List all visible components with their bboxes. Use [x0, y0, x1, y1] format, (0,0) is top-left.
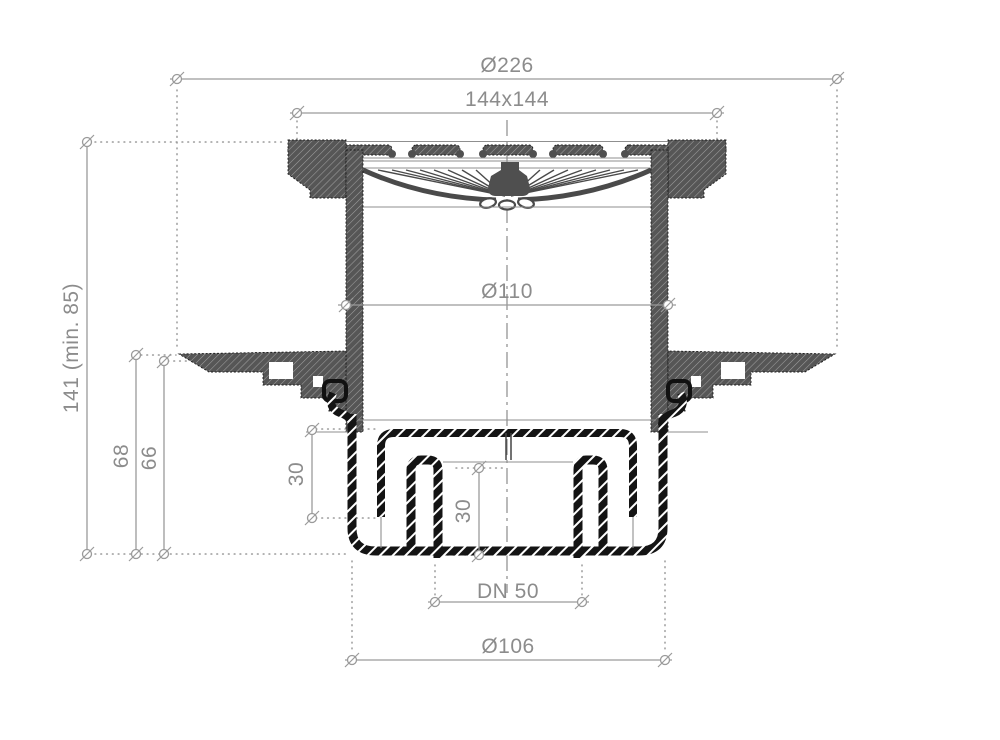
grate-bar-end — [479, 150, 487, 158]
grate-bar-end — [388, 150, 396, 158]
dim-label-height-66: 66 — [138, 446, 161, 470]
grate-bar — [483, 145, 533, 155]
dimension-total-height: 141 (min. 85) — [60, 135, 94, 561]
dim-endpoint — [345, 653, 359, 667]
dim-label-total-height: 141 (min. 85) — [60, 283, 83, 413]
dip-tube-right — [578, 460, 603, 558]
grate-bar-end — [599, 150, 607, 158]
grate-bar-end — [549, 150, 557, 158]
grate-bar-end — [529, 150, 537, 158]
dim-endpoint — [830, 72, 844, 86]
dim-endpoint — [428, 595, 442, 609]
dim-label-trap-depth-left: 30 — [285, 462, 308, 486]
body-wall-left — [346, 150, 363, 432]
dim-endpoint — [129, 547, 143, 561]
body-wall-right — [651, 150, 668, 432]
dim-endpoint — [157, 354, 171, 368]
dim-label-height-68: 68 — [110, 444, 133, 468]
dish-center-boss — [488, 162, 530, 196]
flange-notch-right — [721, 362, 745, 379]
dim-endpoint — [472, 461, 486, 475]
grate-bar — [412, 145, 460, 155]
dimension-base-diameter: Ø106 — [345, 635, 672, 667]
dimension-height-66: 66 — [138, 354, 171, 561]
dim-endpoint — [710, 106, 724, 120]
flange-hole-right — [691, 376, 701, 387]
dimension-overall-flange: Ø226 — [170, 54, 844, 86]
dim-label-overall-flange: Ø226 — [480, 54, 533, 77]
dim-label-trap-depth-center: 30 — [452, 499, 475, 523]
strainer-dish — [363, 162, 651, 210]
grate-bar-end — [456, 150, 464, 158]
dim-endpoint — [290, 106, 304, 120]
frame-block-left — [288, 140, 346, 198]
dim-endpoint — [80, 135, 94, 149]
dip-tube-left — [411, 460, 438, 558]
grate-bar — [553, 145, 603, 155]
grate-bar-end — [621, 150, 629, 158]
frame-block-right — [668, 140, 726, 198]
dim-endpoint — [305, 423, 319, 437]
dim-endpoint — [170, 72, 184, 86]
dim-label-outlet: DN 50 — [477, 580, 539, 603]
dish-drain-hole — [499, 201, 515, 210]
dimension-outlet: DN 50 — [428, 580, 589, 609]
drawing-page: Ø226 144x144 Ø110 141 (min. 85) 68 — [0, 0, 1000, 740]
dim-endpoint — [305, 511, 319, 525]
dish-curve-right — [518, 170, 651, 200]
flange-hole-left — [313, 376, 323, 387]
grate-bar-end — [408, 150, 416, 158]
dimension-grate-size: 144x144 — [290, 88, 724, 120]
dim-label-base-diameter: Ø106 — [481, 635, 534, 658]
flange-notch-left — [269, 362, 293, 379]
drain-body — [179, 140, 835, 558]
dim-endpoint — [658, 653, 672, 667]
technical-drawing-svg: Ø226 144x144 Ø110 141 (min. 85) 68 — [0, 0, 1000, 740]
dim-label-body-diameter: Ø110 — [481, 280, 533, 303]
dimension-trap-depth-left: 30 — [285, 423, 319, 525]
dim-endpoint — [80, 547, 94, 561]
dim-endpoint — [157, 547, 171, 561]
dim-endpoint — [129, 348, 143, 362]
dim-endpoint — [575, 595, 589, 609]
dim-label-grate-size: 144x144 — [465, 88, 549, 111]
